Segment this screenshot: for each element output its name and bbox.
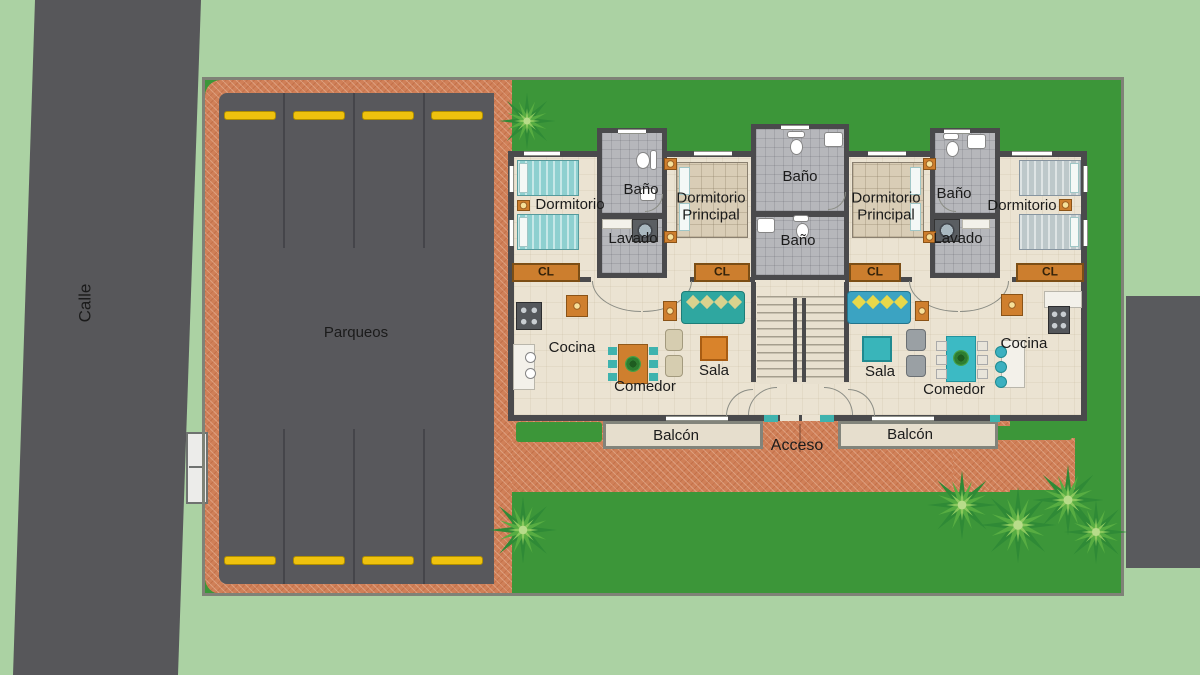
dining-chair	[977, 369, 988, 379]
dining-chair	[608, 360, 617, 368]
sliding-window	[872, 416, 934, 421]
palm-tree-icon	[1060, 496, 1132, 568]
pillow	[519, 217, 528, 247]
sink	[824, 132, 843, 147]
stove	[1048, 306, 1070, 334]
dining-chair	[608, 347, 617, 355]
dining-chair	[649, 360, 658, 368]
entry-window-accent	[764, 415, 778, 422]
stove	[516, 302, 542, 330]
window	[1083, 166, 1088, 192]
room-label-bathroom: Baño	[782, 169, 817, 186]
street	[0, 0, 215, 675]
access-label: Acceso	[771, 437, 823, 455]
ottoman	[862, 336, 892, 362]
toilet	[946, 141, 959, 157]
armchair	[665, 355, 683, 377]
room-label-dining: Comedor	[614, 379, 676, 396]
toilet-tank	[943, 133, 959, 140]
room-label-kitchen: Cocina	[1001, 336, 1048, 353]
street-label: Calle	[77, 284, 96, 323]
toilet-tank	[650, 150, 657, 170]
kitchen-sink	[525, 352, 536, 363]
pillow	[1070, 217, 1079, 247]
armchair	[906, 329, 926, 351]
window	[781, 125, 809, 130]
balcony-label: Balcón	[887, 427, 933, 444]
room-label-living: Sala	[865, 364, 895, 381]
palm-tree-icon	[495, 89, 559, 153]
closet-label: CL	[867, 265, 883, 278]
laundry-counter	[962, 219, 990, 229]
side-road	[1126, 296, 1200, 568]
dining-chair	[936, 341, 947, 351]
window	[1083, 220, 1088, 246]
closet-label: CL	[538, 265, 554, 278]
room-label-bathroom: Baño	[936, 186, 971, 203]
window	[509, 220, 514, 246]
entry-window-accent	[820, 415, 834, 422]
nightstand	[664, 158, 677, 170]
entry-mullion	[799, 415, 802, 421]
table-plant	[953, 350, 969, 366]
room-label-bathroom: Baño	[780, 233, 815, 250]
laundry-counter	[602, 219, 632, 229]
nightstand	[1059, 199, 1072, 211]
room-label-kitchen: Cocina	[549, 340, 596, 357]
room-label-bathroom: Baño	[623, 182, 658, 199]
room-label-laundry: Lavado	[608, 231, 657, 248]
nightstand	[517, 200, 530, 211]
side-table	[915, 301, 929, 321]
stairs	[757, 296, 844, 384]
closet-label: CL	[714, 265, 730, 278]
sink	[757, 218, 775, 233]
site-plan: Calle Parqueos	[0, 0, 1200, 675]
toilet	[636, 152, 650, 169]
window	[868, 151, 906, 156]
closet-label: CL	[1042, 265, 1058, 278]
window-accent	[990, 415, 1000, 422]
room-label-laundry: Lavado	[933, 231, 982, 248]
room-label-bedroom: Dormitorio	[987, 198, 1056, 215]
dining-chair	[936, 355, 947, 365]
room-label-master-bedroom: Dormitorio Principal	[676, 191, 745, 224]
kitchen-cabinet	[566, 295, 588, 317]
side-table	[663, 301, 677, 321]
bar-stool	[995, 376, 1007, 388]
dining-chair	[977, 341, 988, 351]
table-plant	[625, 356, 641, 372]
window	[694, 151, 732, 156]
sink	[967, 134, 986, 149]
kitchen-counter	[513, 344, 535, 390]
room-label-bedroom: Dormitorio	[535, 197, 604, 214]
toilet-tank	[787, 131, 805, 138]
room-label-living: Sala	[699, 363, 729, 380]
pillow	[1070, 163, 1079, 193]
window	[1012, 151, 1052, 156]
dining-chair	[649, 347, 658, 355]
room-label-dining: Comedor	[923, 382, 985, 399]
dining-chair	[977, 355, 988, 365]
armchair	[906, 355, 926, 377]
nightstand	[664, 231, 677, 243]
stairwell-wall	[751, 282, 756, 382]
balcony-label: Balcón	[653, 428, 699, 445]
palm-tree-icon	[485, 492, 561, 568]
toilet-tank	[793, 215, 809, 222]
nightstand	[923, 158, 936, 170]
stair-rail	[802, 298, 806, 382]
armchair	[665, 329, 683, 351]
ottoman	[700, 336, 728, 361]
dining-chair	[936, 369, 947, 379]
toilet	[790, 139, 803, 155]
sliding-window	[666, 416, 728, 421]
kitchen-cabinet	[1001, 294, 1023, 316]
pillow	[519, 163, 528, 193]
bar-stool	[995, 361, 1007, 373]
room-label-master-bedroom: Dormitorio Principal	[851, 191, 920, 224]
window	[618, 129, 646, 134]
stair-rail	[793, 298, 797, 382]
window	[509, 166, 514, 192]
kitchen-sink	[525, 368, 536, 379]
